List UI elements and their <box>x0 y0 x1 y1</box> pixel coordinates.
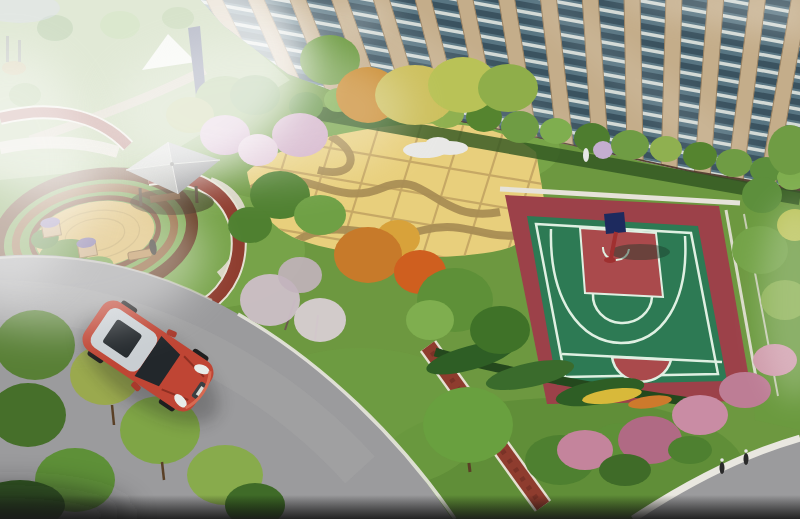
blossom-tree <box>294 298 346 342</box>
person-figure <box>744 449 748 453</box>
tree-canopy <box>294 195 346 235</box>
court-key <box>580 228 663 297</box>
tree-canopy <box>501 111 539 143</box>
hoop-shadow <box>610 244 670 260</box>
tree-canopy <box>540 118 572 144</box>
tree-canopy <box>478 64 538 112</box>
landscape-rendering <box>0 0 800 519</box>
person-figure <box>744 453 749 465</box>
gazebo-post <box>196 186 197 203</box>
blossom-tree <box>278 257 322 293</box>
tree-canopy <box>716 149 752 177</box>
tree-canopy <box>611 130 649 160</box>
tree-canopy <box>650 136 682 162</box>
hoop-base <box>604 257 616 263</box>
person-figure <box>720 462 725 474</box>
blossom-tree <box>593 141 613 159</box>
tree-canopy <box>742 177 782 213</box>
shrub <box>668 436 712 464</box>
flowering-shrub <box>672 395 728 435</box>
mist-center-left <box>110 40 410 180</box>
person-figure <box>720 458 724 462</box>
hoop-backboard <box>604 212 626 234</box>
person-figure <box>583 148 589 162</box>
autumn-tree <box>334 227 402 283</box>
tree-canopy <box>406 300 454 340</box>
shrub <box>599 454 651 486</box>
flowering-shrub <box>719 372 771 408</box>
tree-canopy <box>228 207 272 243</box>
tree-canopy <box>470 306 530 354</box>
tree-canopy <box>423 387 513 463</box>
tree-canopy <box>683 142 717 170</box>
